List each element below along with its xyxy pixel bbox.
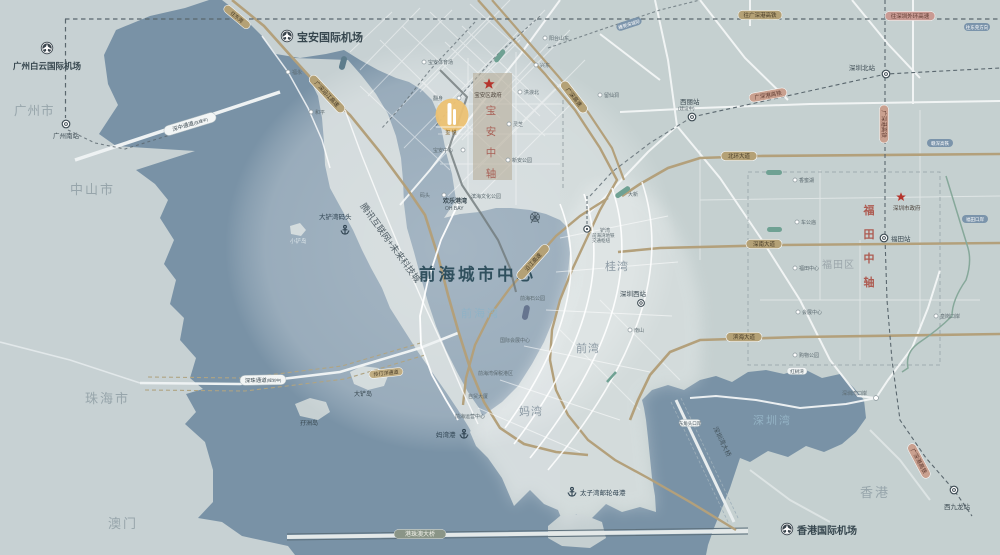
svg-text:广州南站: 广州南站 <box>53 131 80 140</box>
svg-text:广州市: 广州市 <box>14 103 55 118</box>
svg-text:东角头口岸: 东角头口岸 <box>679 420 702 427</box>
svg-text:轴: 轴 <box>864 275 875 289</box>
svg-text:西丽站: 西丽站 <box>680 97 700 106</box>
svg-text:和平: 和平 <box>315 109 325 116</box>
svg-text:福: 福 <box>863 203 875 217</box>
svg-text:洪浪北: 洪浪北 <box>524 89 539 96</box>
svg-text:赣深高铁: 赣深高铁 <box>931 140 949 147</box>
svg-text:玺 悦: 玺 悦 <box>445 129 456 136</box>
svg-text:宝安区政府: 宝安区政府 <box>474 91 502 99</box>
svg-text:福田中心: 福田中心 <box>799 265 819 272</box>
svg-text:香港: 香港 <box>860 485 890 500</box>
svg-text:往深圳外环高速: 往深圳外环高速 <box>891 12 930 20</box>
svg-text:深圳湾: 深圳湾 <box>753 413 792 427</box>
svg-text:香蜜湖: 香蜜湖 <box>799 177 814 184</box>
svg-text:深圳北站: 深圳北站 <box>849 63 876 72</box>
svg-text:宝: 宝 <box>486 104 497 117</box>
svg-text:安: 安 <box>486 125 497 138</box>
svg-text:国际会展中心: 国际会展中心 <box>500 337 530 344</box>
svg-text:深圳湾口岸: 深圳湾口岸 <box>842 390 867 397</box>
svg-text:会展中心: 会展中心 <box>802 309 822 316</box>
svg-text:购物公园: 购物公园 <box>799 352 819 359</box>
svg-text:桂湾: 桂湾 <box>605 259 629 273</box>
svg-text:太子湾邮轮母港: 太子湾邮轮母港 <box>580 488 626 497</box>
svg-text:小铲岛: 小铲岛 <box>290 237 307 245</box>
svg-text:广州白云国际机场: 广州白云国际机场 <box>13 61 82 71</box>
svg-text:大新: 大新 <box>628 191 638 198</box>
svg-text:往广深港高铁: 往广深港高铁 <box>743 11 777 19</box>
svg-text:大铲岛: 大铲岛 <box>354 390 372 398</box>
svg-text:南山: 南山 <box>634 327 644 334</box>
svg-text:车公庙: 车公庙 <box>801 219 816 226</box>
svg-text:宝安体育场: 宝安体育场 <box>428 59 453 66</box>
svg-text:欢乐港湾: 欢乐港湾 <box>442 197 467 205</box>
svg-text:福永: 福永 <box>292 69 302 76</box>
svg-text:阳台山东: 阳台山东 <box>549 35 569 42</box>
svg-text:轴: 轴 <box>486 167 497 180</box>
svg-text:码头: 码头 <box>420 192 430 199</box>
svg-text:大铲湾码头: 大铲湾码头 <box>319 212 352 221</box>
svg-text:福田区: 福田区 <box>822 258 855 271</box>
svg-text:西九龙站: 西九龙站 <box>944 502 971 511</box>
svg-text:交通枢纽: 交通枢纽 <box>592 237 610 244</box>
svg-text:滨海大道: 滨海大道 <box>733 333 756 341</box>
svg-text:广深港高铁: 广深港高铁 <box>880 110 888 138</box>
svg-text:香港国际机场: 香港国际机场 <box>797 524 857 537</box>
svg-text:自贸大厦: 自贸大厦 <box>468 393 488 400</box>
svg-text:前海石公园: 前海石公园 <box>520 295 545 302</box>
svg-text:珠海市: 珠海市 <box>85 391 130 406</box>
svg-text:(建设中): (建设中) <box>678 105 695 112</box>
svg-text:翻身: 翻身 <box>433 95 443 102</box>
svg-text:妈湾港: 妈湾港 <box>436 430 456 439</box>
svg-text:深圳西站: 深圳西站 <box>620 289 647 298</box>
svg-text:前海运营中心: 前海运营中心 <box>455 413 485 420</box>
svg-text:田: 田 <box>864 228 875 241</box>
svg-text:前海湾: 前海湾 <box>461 306 500 320</box>
svg-text:中: 中 <box>864 251 875 265</box>
svg-text:深圳市政府: 深圳市政府 <box>893 204 921 212</box>
svg-text:兴东: 兴东 <box>540 62 550 69</box>
svg-text:福田口岸: 福田口岸 <box>966 216 984 223</box>
svg-text:留仙洞: 留仙洞 <box>604 92 619 99</box>
svg-text:铲湾: 铲湾 <box>600 227 610 234</box>
svg-text:前湾: 前湾 <box>576 341 600 355</box>
svg-text:宝安中心: 宝安中心 <box>433 147 453 154</box>
svg-text:妈湾: 妈湾 <box>519 404 543 418</box>
svg-text:滨海文化公园: 滨海文化公园 <box>471 193 501 200</box>
svg-text:皇岗口岸: 皇岗口岸 <box>940 313 960 320</box>
svg-text:新安公园: 新安公园 <box>512 157 532 164</box>
svg-text:宝安国际机场: 宝安国际机场 <box>297 30 363 44</box>
svg-text:中: 中 <box>486 146 497 159</box>
svg-text:灵芝: 灵芝 <box>513 121 523 128</box>
svg-text:前海湾保税港区: 前海湾保税港区 <box>478 370 513 377</box>
svg-text:孖洲岛: 孖洲岛 <box>300 419 318 427</box>
svg-text:OH BAY: OH BAY <box>445 206 464 212</box>
svg-text:澳门: 澳门 <box>108 516 138 531</box>
svg-text:深南大道: 深南大道 <box>753 240 776 248</box>
svg-text:北环大道: 北环大道 <box>728 152 751 160</box>
svg-text:港珠澳大桥: 港珠澳大桥 <box>405 530 435 538</box>
svg-text:中山市: 中山市 <box>70 182 115 197</box>
svg-text:福田站: 福田站 <box>891 234 911 243</box>
svg-text:红树湾: 红树湾 <box>790 368 804 375</box>
svg-text:往东莞方向: 往东莞方向 <box>966 24 989 31</box>
